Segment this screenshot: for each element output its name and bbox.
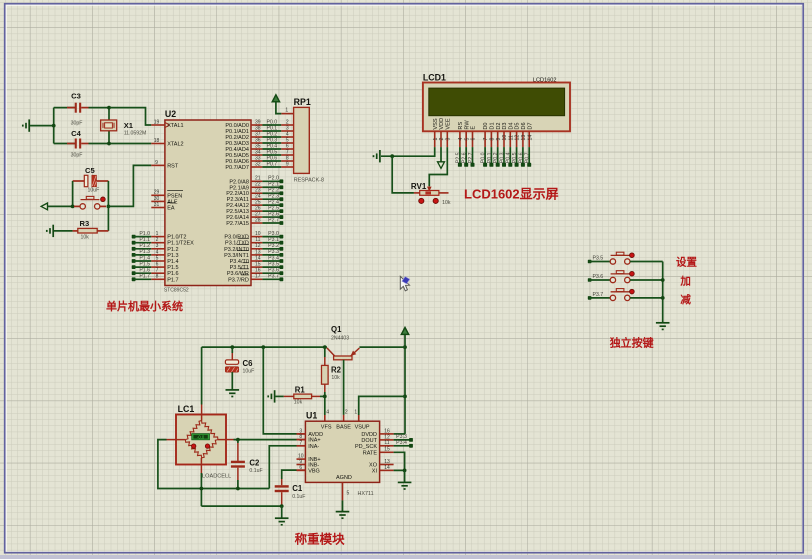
svg-text:10k: 10k	[81, 235, 90, 241]
svg-text:P1.1: P1.1	[139, 237, 150, 243]
svg-text:16: 16	[255, 268, 261, 274]
svg-text:RESPACK-8: RESPACK-8	[294, 177, 324, 183]
svg-text:P1.7: P1.7	[139, 274, 150, 280]
svg-text:C4: C4	[71, 129, 81, 138]
svg-text:P0.3: P0.3	[499, 152, 505, 163]
svg-text:RV1: RV1	[411, 182, 427, 191]
svg-text:D3: D3	[502, 122, 508, 129]
svg-text:P1.4: P1.4	[167, 259, 178, 265]
svg-text:4: 4	[326, 410, 329, 416]
svg-text:P1.5: P1.5	[167, 265, 178, 271]
svg-text:称重模块: 称重模块	[295, 531, 346, 546]
svg-text:9: 9	[155, 160, 158, 166]
svg-text:29: 29	[154, 190, 160, 196]
svg-text:P0.6: P0.6	[518, 152, 524, 163]
svg-text:U2: U2	[165, 109, 176, 119]
svg-text:10uF: 10uF	[243, 368, 255, 374]
svg-text:P2.7: P2.7	[268, 217, 279, 223]
svg-text:C2: C2	[249, 459, 260, 468]
svg-text:P0.7: P0.7	[525, 152, 531, 163]
svg-text:PD_SCK: PD_SCK	[355, 444, 377, 450]
svg-text:单片机最小系统: 单片机最小系统	[106, 299, 183, 313]
svg-text:Q1: Q1	[331, 325, 342, 334]
svg-text:8: 8	[156, 274, 159, 280]
svg-text:VSS: VSS	[433, 118, 439, 129]
svg-text:P3.3: P3.3	[268, 249, 279, 255]
svg-text:15: 15	[255, 262, 261, 268]
svg-text:P3.0/RXD: P3.0/RXD	[224, 235, 248, 241]
svg-text:LCD1602: LCD1602	[533, 77, 557, 83]
svg-text:P3.6: P3.6	[593, 274, 604, 280]
svg-text:P3.4: P3.4	[268, 255, 279, 261]
svg-text:XI: XI	[372, 468, 378, 474]
svg-text:P1.1/T2EX: P1.1/T2EX	[167, 241, 194, 247]
svg-text:P1.6: P1.6	[139, 268, 150, 274]
svg-text:10k: 10k	[331, 375, 340, 381]
svg-text:P0.1: P0.1	[487, 152, 493, 163]
svg-text:RP1: RP1	[294, 97, 311, 107]
svg-text:9: 9	[496, 138, 502, 141]
svg-text:11.0592M: 11.0592M	[124, 130, 147, 136]
svg-text:E: E	[471, 126, 477, 130]
svg-text:P1.2: P1.2	[139, 243, 150, 249]
svg-text:P0.5: P0.5	[512, 152, 518, 163]
svg-text:14: 14	[255, 255, 261, 261]
svg-text:-0.0: -0.0	[197, 435, 205, 440]
svg-text:P3.5: P3.5	[593, 255, 604, 261]
svg-text:14: 14	[384, 465, 390, 471]
svg-text:P3.7: P3.7	[593, 292, 604, 298]
svg-text:P0.0: P0.0	[481, 152, 487, 163]
svg-text:P3.0: P3.0	[268, 231, 279, 237]
svg-text:7: 7	[156, 268, 159, 274]
svg-text:P3.4/T0: P3.4/T0	[230, 259, 249, 265]
svg-text:LCD1602显示屏: LCD1602显示屏	[464, 187, 559, 202]
svg-text:31: 31	[154, 202, 160, 208]
svg-text:XTAL2: XTAL2	[167, 142, 183, 148]
svg-text:C6: C6	[243, 359, 254, 368]
svg-text:30pF: 30pF	[71, 153, 83, 159]
svg-text:LOADCELL: LOADCELL	[202, 474, 231, 480]
svg-text:P1.5: P1.5	[139, 261, 150, 267]
svg-text:5: 5	[464, 138, 470, 141]
svg-text:10: 10	[502, 135, 508, 141]
svg-text:8: 8	[299, 434, 302, 440]
svg-text:VFS: VFS	[321, 425, 332, 431]
svg-text:减: 减	[680, 293, 691, 306]
svg-text:LC1: LC1	[178, 404, 195, 414]
svg-text:1: 1	[433, 138, 439, 141]
svg-text:D7: D7	[527, 122, 533, 129]
svg-text:P2.5: P2.5	[455, 152, 461, 163]
svg-text:P3.4: P3.4	[396, 440, 407, 446]
svg-text:INA+: INA+	[308, 438, 320, 444]
svg-text:P1.0: P1.0	[139, 231, 150, 237]
svg-text:8: 8	[490, 138, 496, 141]
svg-text:17: 17	[255, 274, 261, 280]
svg-text:X1: X1	[124, 121, 134, 130]
svg-text:P3.1/TXD: P3.1/TXD	[225, 241, 249, 247]
svg-text:P0.4: P0.4	[506, 152, 512, 163]
svg-text:3: 3	[156, 243, 159, 249]
svg-text:R3: R3	[80, 219, 90, 228]
svg-text:设置: 设置	[676, 256, 697, 269]
svg-text:7: 7	[299, 440, 302, 446]
svg-text:P1.4: P1.4	[139, 255, 150, 261]
svg-text:RST: RST	[167, 163, 179, 169]
svg-text:P1.3: P1.3	[139, 249, 150, 255]
svg-text:13: 13	[521, 135, 527, 141]
svg-text:2: 2	[439, 138, 445, 141]
svg-text:D0: D0	[483, 122, 489, 129]
svg-text:3: 3	[445, 138, 451, 141]
svg-text:D1: D1	[490, 122, 496, 129]
svg-text:P3.6/WR: P3.6/WR	[227, 271, 249, 277]
svg-text:1: 1	[156, 231, 159, 237]
svg-text:D6: D6	[521, 122, 527, 129]
svg-text:P0.7/AD7: P0.7/AD7	[225, 165, 249, 171]
svg-text:HX711: HX711	[358, 491, 374, 497]
svg-text:11: 11	[255, 237, 260, 243]
svg-text:C1: C1	[292, 484, 303, 493]
svg-text:R1: R1	[295, 385, 306, 394]
svg-text:4: 4	[458, 138, 464, 141]
svg-text:1: 1	[354, 410, 357, 416]
svg-text:P0.7: P0.7	[266, 161, 277, 167]
svg-text:P1.2: P1.2	[167, 247, 178, 253]
svg-text:12: 12	[255, 243, 261, 249]
svg-text:AGND: AGND	[336, 475, 352, 481]
svg-text:P0.2: P0.2	[493, 152, 499, 163]
svg-text:P3.2/INT0: P3.2/INT0	[224, 247, 249, 253]
svg-text:P1.0/T2: P1.0/T2	[167, 235, 186, 241]
svg-text:14: 14	[527, 135, 533, 141]
svg-text:VEE: VEE	[445, 118, 451, 129]
svg-text:9: 9	[286, 161, 289, 167]
svg-text:10k: 10k	[294, 399, 303, 405]
svg-text:2N4403: 2N4403	[331, 336, 349, 342]
svg-text:RS: RS	[458, 122, 464, 130]
svg-text:32: 32	[255, 161, 261, 167]
svg-text:P1.3: P1.3	[167, 253, 178, 259]
svg-text:P2.7: P2.7	[468, 152, 474, 163]
svg-text:1: 1	[285, 108, 288, 114]
svg-text:C5: C5	[85, 166, 95, 175]
svg-text:PSEN: PSEN	[167, 193, 182, 199]
svg-text:13: 13	[255, 249, 261, 255]
svg-text:EA: EA	[167, 206, 175, 212]
svg-text:10k: 10k	[442, 200, 451, 206]
svg-text:D4: D4	[508, 122, 514, 129]
svg-text:6: 6	[156, 262, 159, 268]
svg-text:18: 18	[154, 138, 160, 144]
svg-text:LCD1: LCD1	[423, 73, 446, 83]
svg-text:6: 6	[471, 138, 477, 141]
svg-text:P3.5/T1: P3.5/T1	[230, 265, 249, 271]
svg-text:D5: D5	[515, 122, 521, 129]
svg-text:28: 28	[255, 217, 261, 223]
svg-text:P3.3: P3.3	[396, 434, 407, 440]
svg-text:P2.6: P2.6	[462, 152, 468, 163]
svg-text:U1: U1	[306, 410, 317, 420]
svg-text:RATE: RATE	[363, 450, 378, 456]
svg-text:VSUP: VSUP	[355, 425, 370, 431]
svg-text:VDD: VDD	[439, 118, 445, 130]
svg-text:7: 7	[483, 138, 489, 141]
svg-text:BASE: BASE	[336, 425, 351, 431]
svg-text:30pF: 30pF	[71, 120, 83, 126]
svg-text:R2: R2	[331, 366, 342, 375]
svg-text:P3.2: P3.2	[268, 243, 279, 249]
svg-text:P1.7: P1.7	[167, 277, 178, 283]
svg-text:0.1uF: 0.1uF	[249, 468, 262, 474]
svg-text:2: 2	[156, 237, 159, 243]
svg-text:2: 2	[345, 410, 348, 416]
svg-text:0.1uF: 0.1uF	[292, 494, 305, 500]
svg-text:加: 加	[679, 275, 691, 288]
svg-text:P1.6: P1.6	[167, 271, 178, 277]
svg-text:D2: D2	[496, 122, 502, 129]
svg-text:STC89C52: STC89C52	[164, 288, 189, 294]
svg-text:ALE: ALE	[167, 199, 178, 205]
svg-text:P3.1: P3.1	[268, 237, 279, 243]
svg-text:RW: RW	[464, 120, 470, 130]
svg-text:C3: C3	[71, 92, 81, 101]
svg-text:VBG: VBG	[308, 468, 320, 474]
svg-text:6: 6	[299, 465, 302, 471]
svg-text:30: 30	[154, 196, 160, 202]
svg-text:P3.7/RD: P3.7/RD	[228, 277, 249, 283]
svg-text:P3.5: P3.5	[268, 261, 279, 267]
svg-text:独立按键: 独立按键	[609, 335, 655, 349]
svg-text:XTAL1: XTAL1	[167, 123, 183, 129]
svg-text:P3.3/INT1: P3.3/INT1	[224, 253, 249, 259]
svg-text:5: 5	[347, 491, 350, 497]
svg-text:P3.7: P3.7	[268, 274, 279, 280]
svg-text:12: 12	[515, 135, 521, 141]
svg-text:P2.7/A15: P2.7/A15	[226, 221, 249, 227]
svg-text:10: 10	[255, 231, 261, 237]
svg-text:11: 11	[384, 440, 389, 446]
svg-text:10uF: 10uF	[88, 187, 100, 193]
svg-text:11: 11	[508, 135, 514, 140]
svg-text:P3.6: P3.6	[268, 268, 279, 274]
svg-text:15: 15	[384, 447, 390, 453]
svg-text:5: 5	[156, 255, 159, 261]
svg-text:INA-: INA-	[308, 444, 319, 450]
svg-text:19: 19	[154, 119, 160, 125]
svg-text:4: 4	[156, 249, 159, 255]
